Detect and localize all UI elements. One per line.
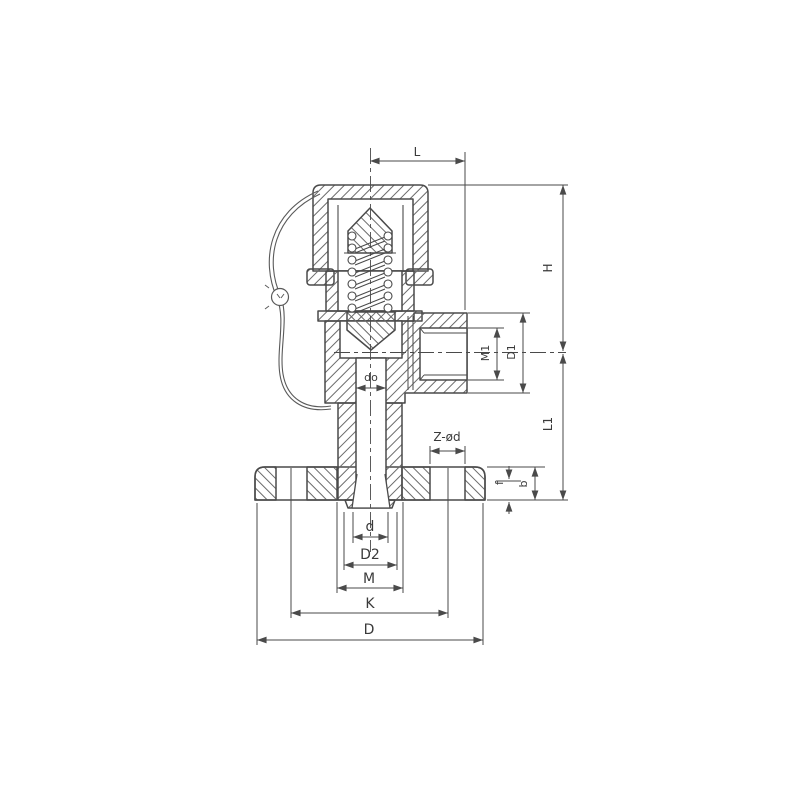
dim-label-H: H	[541, 263, 555, 272]
dim-label-L: L	[414, 145, 421, 159]
dim-label-do: do	[364, 371, 378, 384]
dim-label-Z-od: Z-ød	[433, 430, 460, 444]
valve-technical-drawing: L H L1 M1 D1 Z-ød f b do d D2 M K D	[0, 0, 800, 800]
dim-label-D1: D1	[505, 344, 518, 359]
dim-label-L1: L1	[541, 417, 555, 431]
dim-label-d: d	[366, 519, 375, 535]
valve-geometry	[255, 185, 485, 508]
lead-seal-icon	[265, 285, 289, 309]
dim-label-M: M	[363, 571, 375, 587]
dim-label-K: K	[365, 596, 375, 612]
dim-label-D2: D2	[360, 547, 380, 563]
drawing-canvas: L H L1 M1 D1 Z-ød f b do d D2 M K D	[0, 0, 800, 800]
dim-label-b: b	[517, 480, 530, 487]
dim-label-M1: M1	[479, 345, 492, 362]
dim-label-D: D	[364, 622, 375, 638]
